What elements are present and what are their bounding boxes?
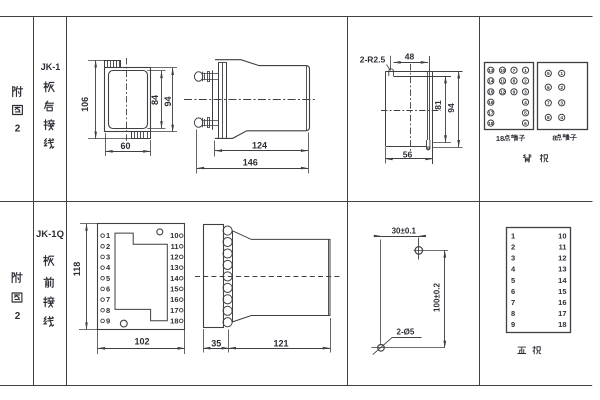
svg-text:102: 102 (134, 336, 149, 346)
svg-text:121: 121 (273, 338, 288, 348)
svg-text:118: 118 (72, 262, 82, 277)
svg-text:3: 3 (106, 253, 110, 262)
svg-text:9: 9 (106, 317, 110, 326)
svg-text:6: 6 (106, 285, 110, 294)
svg-text:5: 5 (106, 274, 110, 283)
svg-text:17: 17 (558, 309, 566, 318)
svg-text:2: 2 (15, 311, 21, 322)
svg-text:9: 9 (511, 320, 515, 329)
svg-text:48: 48 (405, 52, 415, 62)
svg-text:4: 4 (511, 265, 516, 274)
svg-text:11: 11 (500, 79, 505, 85)
svg-text:14: 14 (488, 79, 494, 85)
svg-text:30±0.1: 30±0.1 (392, 227, 417, 236)
svg-text:8: 8 (106, 306, 110, 315)
svg-text:10: 10 (170, 231, 178, 240)
svg-text:8: 8 (513, 79, 516, 85)
svg-text:146: 146 (243, 158, 258, 168)
svg-text:18: 18 (496, 134, 504, 143)
svg-text:2-R2.5: 2-R2.5 (360, 55, 386, 65)
svg-text:11: 11 (559, 243, 567, 252)
svg-text:10: 10 (500, 68, 506, 74)
svg-text:3: 3 (560, 101, 563, 107)
svg-text:9: 9 (513, 90, 516, 96)
svg-text:17: 17 (170, 306, 178, 315)
svg-text:2: 2 (560, 85, 563, 91)
svg-text:124: 124 (252, 140, 267, 150)
svg-text:12: 12 (170, 253, 178, 262)
svg-text:13: 13 (170, 263, 178, 272)
svg-text:4: 4 (106, 263, 111, 272)
svg-text:15: 15 (170, 285, 178, 294)
svg-text:84: 84 (150, 95, 160, 105)
svg-text:2: 2 (511, 243, 515, 252)
svg-text:17: 17 (488, 111, 494, 117)
svg-text:16: 16 (170, 295, 178, 304)
svg-text:81: 81 (433, 100, 443, 110)
svg-text:18: 18 (488, 121, 494, 127)
svg-text:14: 14 (170, 274, 179, 283)
svg-text:2: 2 (524, 79, 527, 85)
svg-text:18: 18 (170, 317, 178, 326)
svg-text:6: 6 (524, 121, 527, 127)
svg-text:3: 3 (511, 254, 515, 263)
svg-text:1: 1 (560, 71, 563, 77)
svg-text:7: 7 (106, 295, 110, 304)
svg-text:2: 2 (15, 124, 21, 135)
svg-text:1: 1 (524, 68, 527, 74)
svg-text:5: 5 (524, 111, 527, 117)
svg-text:15: 15 (488, 90, 494, 96)
svg-text:6: 6 (511, 287, 515, 296)
svg-text:1: 1 (106, 231, 110, 240)
svg-text:JK-1: JK-1 (41, 62, 61, 72)
svg-text:6: 6 (547, 85, 550, 91)
svg-text:100±0.2: 100±0.2 (432, 283, 441, 312)
svg-text:11: 11 (171, 242, 179, 251)
svg-text:56: 56 (403, 149, 413, 159)
svg-text:2: 2 (106, 242, 110, 251)
svg-text:1: 1 (511, 232, 515, 241)
svg-text:16: 16 (558, 298, 566, 307)
svg-text:4: 4 (524, 100, 527, 106)
svg-text:60: 60 (120, 141, 130, 151)
svg-text:7: 7 (547, 101, 550, 107)
svg-text:13: 13 (558, 265, 566, 274)
svg-text:JK-1Q: JK-1Q (36, 229, 64, 240)
svg-text:35: 35 (211, 338, 221, 348)
svg-text:15: 15 (558, 287, 566, 296)
svg-text:7: 7 (511, 298, 515, 307)
svg-text:94: 94 (446, 103, 456, 113)
svg-text:106: 106 (80, 97, 90, 112)
svg-text:7: 7 (513, 68, 516, 74)
svg-text:4: 4 (560, 115, 563, 121)
svg-text:8: 8 (552, 133, 556, 142)
svg-text:18: 18 (558, 320, 566, 329)
svg-text:3: 3 (524, 90, 527, 96)
svg-text:12: 12 (558, 254, 566, 263)
svg-text:10: 10 (558, 232, 566, 241)
svg-text:5: 5 (547, 71, 550, 77)
svg-text:12: 12 (500, 90, 506, 96)
svg-text:2-Ø5: 2-Ø5 (397, 328, 415, 337)
svg-text:16: 16 (488, 100, 494, 106)
svg-text:5: 5 (511, 276, 515, 285)
svg-text:13: 13 (488, 68, 494, 74)
svg-text:8: 8 (511, 309, 515, 318)
svg-text:14: 14 (558, 276, 567, 285)
svg-text:94: 94 (163, 96, 173, 106)
svg-text:8: 8 (547, 115, 550, 121)
